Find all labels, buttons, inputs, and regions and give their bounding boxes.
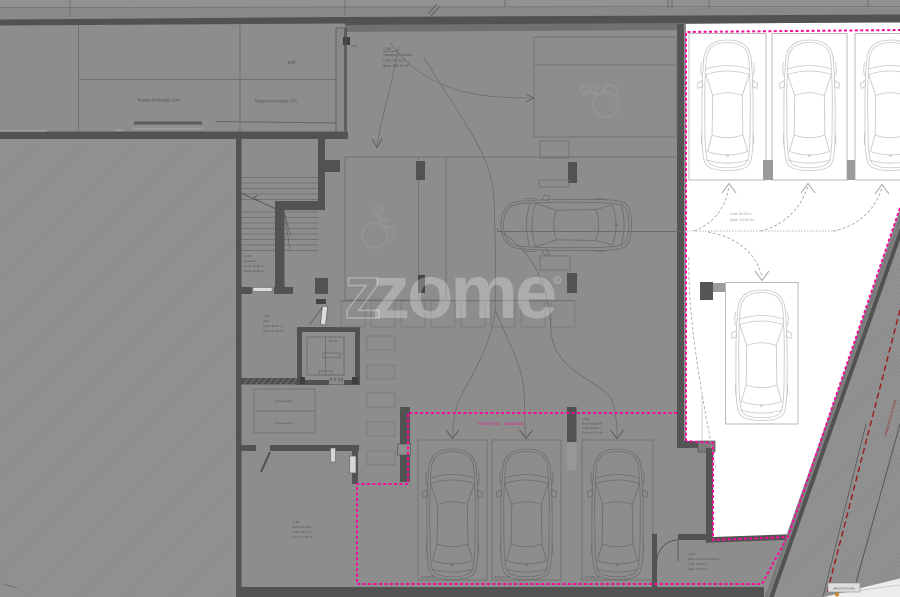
- svg-text:Área: 143.50 m²: Área: 143.50 m²: [730, 218, 755, 222]
- svg-text:Área: 17.35 m²: Área: 17.35 m²: [292, 535, 312, 539]
- svg-text:Arrecadação: Arrecadação: [275, 421, 292, 425]
- svg-text:ENT: ENT: [288, 60, 297, 65]
- svg-text:Cota: 46.20 m: Cota: 46.20 m: [383, 59, 406, 63]
- svg-text:-2.80: -2.80: [582, 417, 589, 421]
- svg-text:4.93: 4.93: [351, 44, 357, 48]
- svg-text:Zona Técnica: Zona Técnica: [292, 525, 311, 529]
- svg-text:Área: 12.88 m²: Área: 12.88 m²: [688, 567, 708, 571]
- svg-text:04.700: 04.700: [329, 339, 338, 343]
- svg-text:Cota: 50.00 m: Cota: 50.00 m: [730, 212, 751, 216]
- svg-text:-2.80: -2.80: [292, 520, 299, 524]
- svg-text:Área: 40.75 m²: Área: 40.75 m²: [582, 431, 602, 435]
- svg-text:Cota: 46.20 m: Cota: 46.20 m: [292, 530, 312, 534]
- svg-text:Rampa inclinação 17%: Rampa inclinação 17%: [255, 99, 298, 104]
- svg-text:Cota: 46.20 m: Cota: 46.20 m: [582, 426, 602, 430]
- svg-text:Área: 980.57 m²: Área: 980.57 m²: [383, 64, 410, 68]
- svg-text:Zona Técnica Piscina 2: Zona Técnica Piscina 2: [688, 557, 719, 561]
- svg-text:zome: zome: [372, 250, 555, 335]
- svg-text:Área: 23.48 m²: Área: 23.48 m²: [244, 269, 264, 273]
- svg-text:RECEPÇÃO - GARAGEM: RECEPÇÃO - GARAGEM: [478, 421, 523, 426]
- svg-text:Átrio: Átrio: [263, 319, 270, 323]
- svg-text:-2.80: -2.80: [244, 254, 251, 258]
- svg-text:R: R: [556, 279, 560, 285]
- svg-text:Fracção Ad: Fracção Ad: [495, 575, 510, 579]
- svg-text:Cota: 46.20 m: Cota: 46.20 m: [244, 264, 264, 268]
- svg-text:Área: 20.16 m²: Área: 20.16 m²: [263, 329, 283, 333]
- svg-text:-2.80: -2.80: [263, 314, 270, 318]
- svg-text:ARQUITETURA: ARQUITETURA: [833, 587, 855, 591]
- svg-text:-2.80: -2.80: [383, 47, 391, 51]
- svg-text:Cota: 46.20 m: Cota: 46.20 m: [263, 324, 283, 328]
- svg-text:Fracção Ae: Fracção Ae: [585, 575, 600, 579]
- svg-text:Fracção Ac: Fracção Ac: [421, 575, 436, 579]
- svg-text:-2.80: -2.80: [688, 552, 695, 556]
- svg-text:Escadas: Escadas: [244, 259, 256, 263]
- svg-text:Box Fracção A: Box Fracção A: [582, 422, 603, 426]
- svg-text:Rampa inclinação 20%: Rampa inclinação 20%: [138, 98, 181, 103]
- svg-text:Arrecadação: Arrecadação: [275, 399, 292, 403]
- svg-text:Cota: 46.10 m: Cota: 46.10 m: [688, 562, 707, 566]
